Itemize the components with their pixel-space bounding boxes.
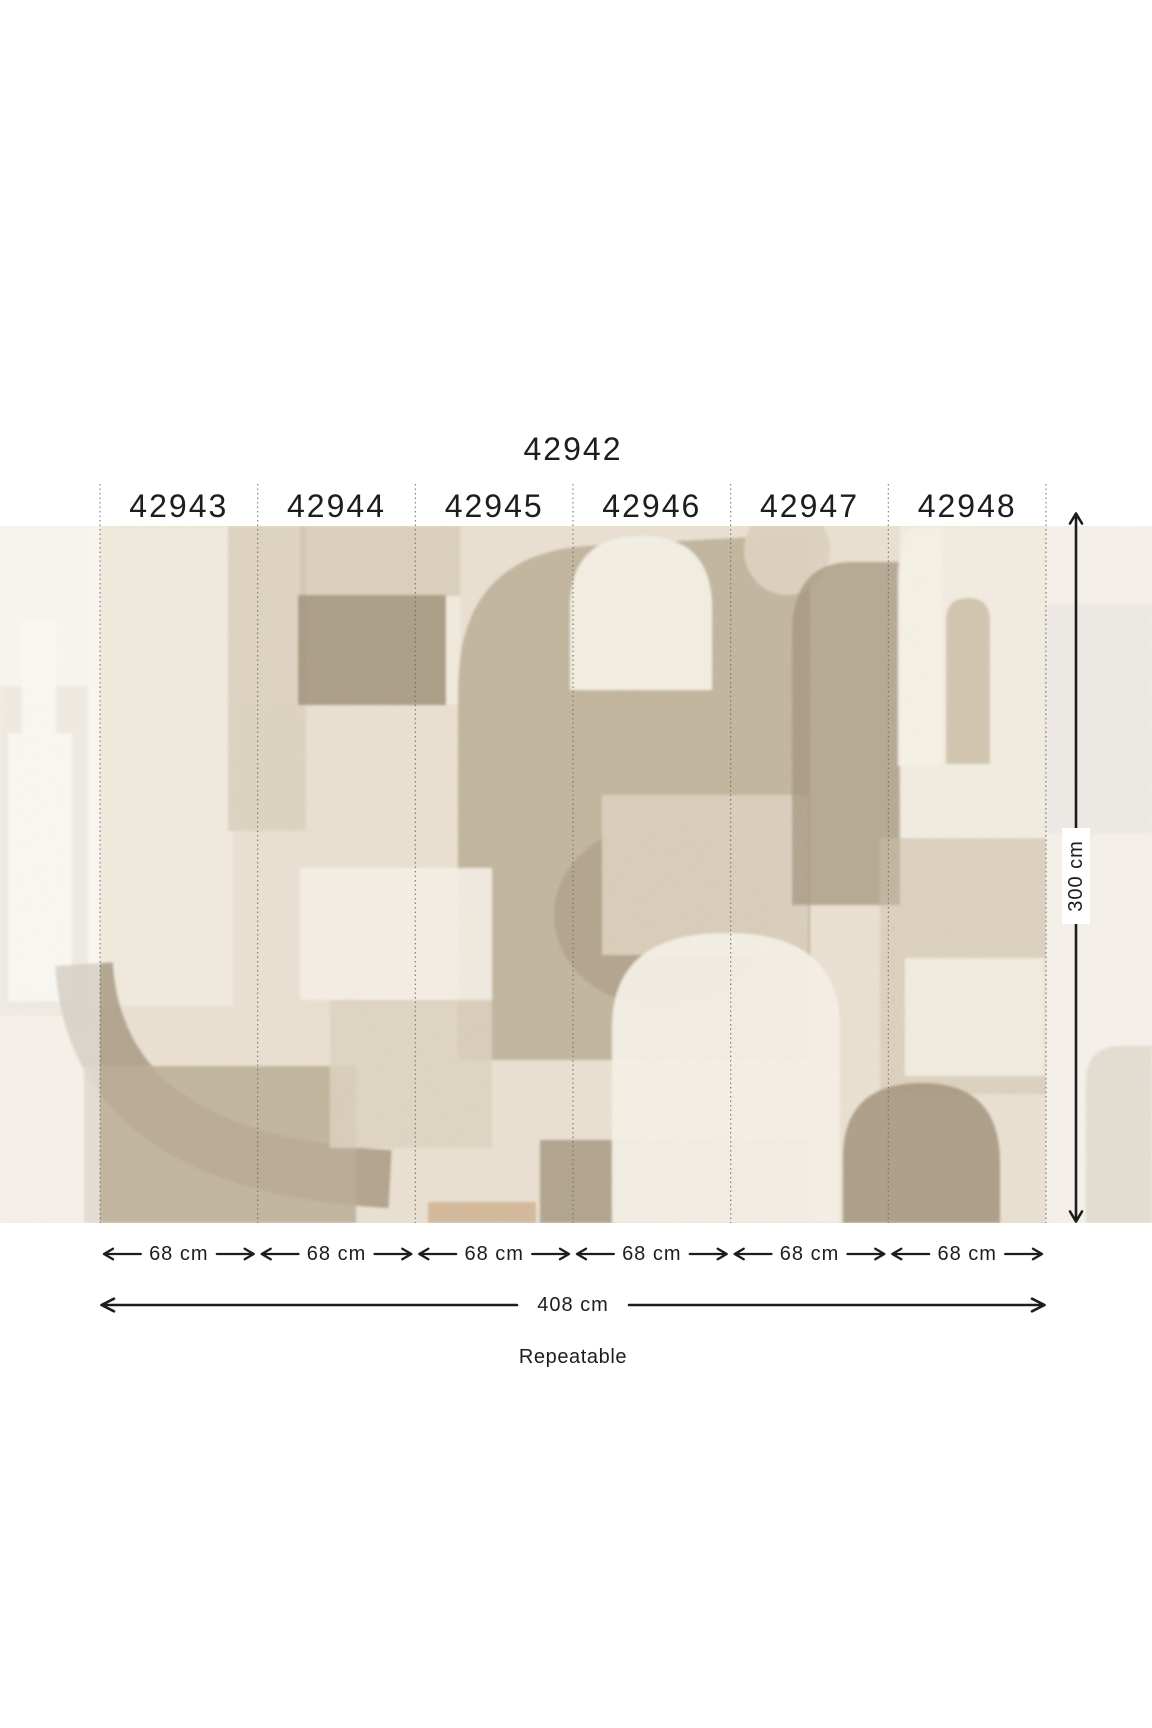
strip-code: 42945 — [445, 488, 544, 524]
strip-width-label: 68 cm — [464, 1243, 523, 1265]
wallpaper-dimension-diagram: 42942 42943 42944 42945 42946 42947 4294… — [0, 0, 1152, 1728]
strip-width-dimensions: 68 cm 68 cm 68 cm 68 cm 68 cm 68 cm — [104, 1243, 1042, 1265]
strip-width-label: 68 cm — [622, 1243, 681, 1265]
strip-width-label: 68 cm — [149, 1243, 208, 1265]
total-width-dimension: 408 cm — [102, 1294, 1045, 1316]
height-dimension: 300 cm — [1062, 514, 1090, 1222]
strip-code: 42946 — [602, 488, 701, 524]
total-width-label: 408 cm — [537, 1294, 609, 1316]
strip-width-label: 68 cm — [307, 1243, 366, 1265]
repeatable-note: Repeatable — [519, 1346, 627, 1368]
strip-code: 42943 — [129, 488, 228, 524]
main-panel-code: 42942 — [524, 431, 623, 467]
strip-code: 42947 — [760, 488, 859, 524]
strip-width-label: 68 cm — [780, 1243, 839, 1265]
dimension-annotations: 42942 42943 42944 42945 42946 42947 4294… — [0, 0, 1152, 1728]
strip-code: 42944 — [287, 488, 386, 524]
height-label: 300 cm — [1065, 840, 1087, 912]
strip-code: 42948 — [918, 488, 1017, 524]
panel-divider-lines — [100, 484, 1046, 1223]
strip-width-label: 68 cm — [937, 1243, 996, 1265]
